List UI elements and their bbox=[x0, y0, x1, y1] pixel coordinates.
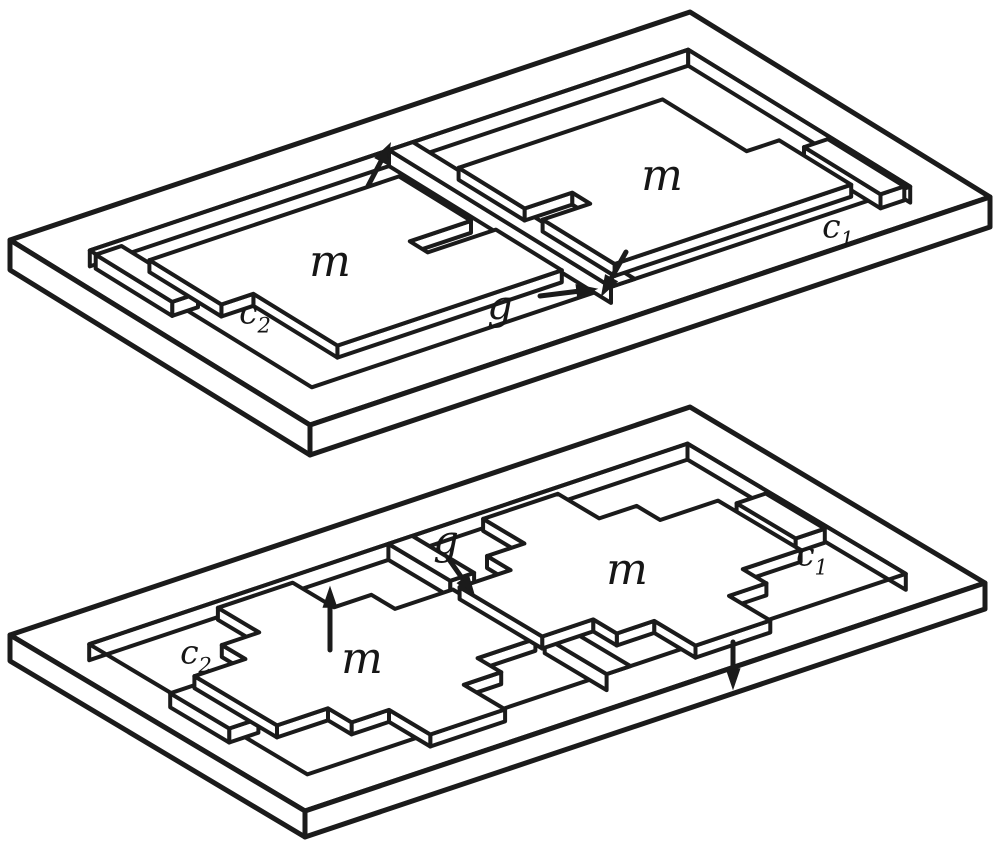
mass-label-top-right: m bbox=[641, 154, 683, 198]
capacitor-label-bottom-c2: c2 bbox=[180, 635, 212, 676]
capacitor-label-top-c1: c1 bbox=[822, 209, 854, 250]
gap-label-bottom: g bbox=[433, 521, 459, 561]
mass-label-bottom-left: m bbox=[341, 637, 383, 681]
capacitor-label-top-c2-sub: 2 bbox=[258, 314, 271, 338]
capacitor-label-bottom-c2-base: c bbox=[180, 632, 198, 671]
capacitor-label-top-c2: c2 bbox=[239, 295, 271, 336]
capacitor-label-top-c1-sub: 1 bbox=[841, 228, 854, 252]
capacitor-label-bottom-c1-sub: 1 bbox=[815, 556, 828, 580]
figure-canvas bbox=[0, 0, 1000, 848]
gap-label-top: g bbox=[487, 286, 513, 326]
capacitor-label-bottom-c1: c1 bbox=[796, 537, 828, 578]
mass-label-bottom-right: m bbox=[606, 548, 648, 592]
mems-figure: m m c2 c1 g m m c2 c1 g bbox=[0, 0, 1000, 848]
capacitor-label-bottom-c1-base: c bbox=[796, 534, 814, 573]
bottom-device bbox=[10, 407, 985, 837]
capacitor-label-top-c1-base: c bbox=[822, 206, 840, 245]
mass-label-top-left: m bbox=[309, 240, 351, 284]
capacitor-label-top-c2-base: c bbox=[239, 292, 257, 331]
capacitor-label-bottom-c2-sub: 2 bbox=[199, 654, 212, 678]
